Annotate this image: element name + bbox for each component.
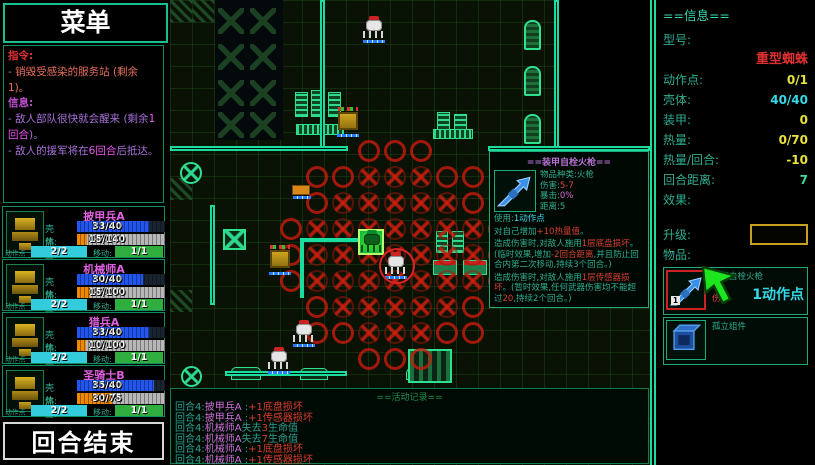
attack-range-cell[interactable] <box>410 322 432 344</box>
attack-range-cell[interactable] <box>306 270 328 292</box>
attack-range-cell[interactable] <box>410 348 432 370</box>
ap-move-row: 动作点2/2移动:1/1 <box>5 246 164 257</box>
game-screen: { "sidebar": { "menu_title": "菜单", "orde… <box>0 0 815 465</box>
attack-range-cell[interactable] <box>332 322 354 344</box>
log-entry: 回合4:机械师A :+1传感器损坏 <box>175 456 644 465</box>
weapon-tooltip: ==装甲自栓火枪== 物品种类:火枪伤害:5-7暴击:0%距离:5 使用:1动作… <box>489 151 649 308</box>
effects-label: 效果: <box>663 190 808 210</box>
item-name: 孤立组件 <box>712 320 746 332</box>
tank-object <box>524 114 541 144</box>
unit-card[interactable]: 圣骑士B壳体:35/40热量:30/75动作点2/2移动:1/1 <box>2 365 165 417</box>
left-sidebar: 菜单 指令: - 销毁受感染的服务站 (剩余1)。 信息: - 敌人部队很快就会… <box>0 0 170 465</box>
wall-segment <box>320 0 325 150</box>
wall-segment <box>554 0 559 148</box>
unit-card[interactable]: 披甲兵A壳体:33/40热量:15/140动作点2/2移动:1/1 <box>2 206 165 258</box>
ally-mech[interactable] <box>336 110 360 138</box>
model-label: 型号: <box>663 30 808 50</box>
upgrade-label: 升级: <box>663 225 691 245</box>
model-value: 重型蜘蛛 <box>663 50 808 70</box>
crate-object <box>223 229 246 250</box>
attack-range-cell[interactable] <box>384 218 406 240</box>
ap-move-row: 动作点2/2移动:1/1 <box>5 352 164 363</box>
item-count-badge: 1 <box>671 296 680 305</box>
fan-object <box>180 162 202 184</box>
attack-range-cell[interactable] <box>462 244 484 266</box>
attack-range-cell[interactable] <box>358 270 380 292</box>
enemy-spider[interactable] <box>267 347 291 375</box>
stat-row: 动作点:0/1 <box>663 70 808 90</box>
attack-range-cell[interactable] <box>358 296 380 318</box>
attack-range-cell[interactable] <box>410 192 432 214</box>
unit-card[interactable]: 猎兵A壳体:33/40热量:10/100动作点2/2移动:1/1 <box>2 312 165 364</box>
selected-unit-spider[interactable] <box>360 230 384 258</box>
tooltip-line: 对自己增加+10热量值。 <box>494 227 644 238</box>
bigx-object <box>250 8 276 34</box>
stat-row: 装甲:0 <box>663 110 808 130</box>
mission-info-list: - 敌人部队很快就会醒来 (剩余1回合)。- 敌人的援军将在6回合后抵达。 <box>8 112 159 159</box>
movement-path <box>300 238 304 298</box>
component-icon[interactable] <box>666 320 706 360</box>
ally-mech[interactable] <box>268 248 292 276</box>
info-panel: ==信息== 型号: 重型蜘蛛 动作点:0/1壳体:40/40装甲:0热量:0/… <box>656 0 815 465</box>
mission-panel: 指令: - 销毁受感染的服务站 (剩余1)。 信息: - 敌人部队很快就会醒来 … <box>3 45 164 203</box>
unit-stats: 动作点:0/1壳体:40/40装甲:0热量:0/70热量/回合:-10回合距离:… <box>663 70 808 190</box>
orders-label: 指令: <box>8 49 159 65</box>
battle-log-lines: 回合4:披甲兵A :+1底盘损坏回合4:披甲兵A :+1传感器损坏回合4:机械师… <box>175 403 644 465</box>
unit-roster: 披甲兵A壳体:33/40热量:15/140动作点2/2移动:1/1机械师A壳体:… <box>2 206 167 418</box>
tooltip-line: 造成伤害时,对敌人施用1层底盘损坏。(临时效果,增加-2回合距离,并且防止回合内… <box>494 239 644 271</box>
stat-row: 壳体:40/40 <box>663 90 808 110</box>
tank-object <box>524 20 541 50</box>
attack-range-cell[interactable] <box>436 270 458 292</box>
attack-range-cell[interactable] <box>358 192 380 214</box>
attack-range-cell[interactable] <box>384 296 406 318</box>
menu-button[interactable]: 菜单 <box>3 3 168 43</box>
wall-segment <box>170 146 348 151</box>
mission-info-line: - 敌人部队很快就会醒来 (剩余1回合)。 <box>8 112 159 144</box>
attack-range-cell[interactable] <box>384 322 406 344</box>
attack-range-cell[interactable] <box>410 166 432 188</box>
attack-range-cell[interactable] <box>384 192 406 214</box>
attack-range-cell[interactable] <box>358 322 380 344</box>
attack-range-cell[interactable] <box>462 218 484 240</box>
fog-of-war <box>558 0 650 148</box>
attack-range-cell[interactable] <box>436 322 458 344</box>
attack-range-cell[interactable] <box>358 140 380 162</box>
orders-list: - 销毁受感染的服务站 (剩余1)。 <box>8 65 159 97</box>
attack-range-cell[interactable] <box>280 218 302 240</box>
attack-range-cell[interactable] <box>332 270 354 292</box>
hatch-object <box>170 290 192 312</box>
unit-card[interactable]: 机械师A壳体:30/40热量:15/100动作点2/2移动:1/1 <box>2 259 165 311</box>
bigx-object <box>218 112 244 138</box>
tooltip-description: 使用:1动作点对自己增加+10热量值。造成伤害时,对敌人施用1层底盘损坏。(临时… <box>494 214 644 304</box>
log-entry: 回合4:披甲兵A :+1底盘损坏 <box>175 403 644 414</box>
attack-range-cell[interactable] <box>358 166 380 188</box>
movement-path <box>300 238 364 242</box>
cursor-icon <box>702 262 743 312</box>
bigx-object <box>218 80 244 106</box>
attack-range-cell[interactable] <box>436 166 458 188</box>
mission-info-label: 信息: <box>8 96 159 112</box>
rack-v-object <box>295 92 308 117</box>
tank-object <box>524 66 541 96</box>
ally-mini[interactable] <box>292 185 312 201</box>
attack-range-cell[interactable] <box>332 296 354 318</box>
tooltip-weapon-icon <box>494 170 536 212</box>
attack-range-cell[interactable] <box>436 192 458 214</box>
order-line: - 销毁受感染的服务站 (剩余1)。 <box>8 65 159 97</box>
bigx-object <box>218 44 244 70</box>
attack-range-cell[interactable] <box>384 348 406 370</box>
item-slot[interactable]: 孤立组件 <box>663 317 808 365</box>
upgrade-slot[interactable] <box>750 224 808 245</box>
stat-row: 回合距离:7 <box>663 170 808 190</box>
tooltip-line: 使用:1动作点 <box>494 214 644 225</box>
attack-range-cell[interactable] <box>436 296 458 318</box>
attack-range-cell[interactable] <box>410 296 432 318</box>
attack-range-cell[interactable] <box>332 244 354 266</box>
battle-log-panel: ==活动记录== 回合4:披甲兵A :+1底盘损坏回合4:披甲兵A :+1传感器… <box>170 388 649 464</box>
attack-range-cell[interactable] <box>436 218 458 240</box>
ap-move-row: 动作点2/2移动:1/1 <box>5 405 164 416</box>
attack-range-cell[interactable] <box>306 296 328 318</box>
rack-h-object <box>433 129 473 139</box>
stat-row: 热量/回合:-10 <box>663 150 808 170</box>
attack-range-cell[interactable] <box>332 166 354 188</box>
hatch-object <box>192 0 214 22</box>
attack-range-cell[interactable] <box>384 166 406 188</box>
attack-range-cell[interactable] <box>462 270 484 292</box>
attack-range-cell[interactable] <box>306 218 328 240</box>
fan-object <box>181 366 202 387</box>
attack-range-cell[interactable] <box>358 348 380 370</box>
enemy-spider-targeted[interactable] <box>384 252 408 280</box>
attack-range-cell[interactable] <box>436 244 458 266</box>
enemy-spider[interactable] <box>292 320 316 348</box>
attack-range-cell[interactable] <box>462 166 484 188</box>
hatch-object <box>170 0 192 22</box>
log-entry: 回合4:机械师A :+1底盘损坏 <box>175 445 644 456</box>
attack-range-cell[interactable] <box>384 140 406 162</box>
end-turn-button[interactable]: 回合结束 <box>3 422 164 460</box>
bigx-object <box>250 112 276 138</box>
bigx-object <box>250 44 276 70</box>
info-panel-title: ==信息== <box>663 5 808 24</box>
bigx-object <box>250 80 276 106</box>
attack-range-cell[interactable] <box>306 244 328 266</box>
enemy-spider[interactable] <box>362 16 386 44</box>
attack-range-cell[interactable] <box>332 218 354 240</box>
wall-segment <box>210 205 215 305</box>
attack-range-cell[interactable] <box>462 322 484 344</box>
stat-row: 热量:0/70 <box>663 130 808 150</box>
tooltip-line: 造成伤害时,对敌人施用1层传感器损坏。(暂时效果,任何武器伤害均不能超过20,持… <box>494 273 644 305</box>
attack-range-cell[interactable] <box>410 218 432 240</box>
log-entry: 回合4:机械师A失去3生命值 <box>175 424 644 435</box>
bigx-object <box>218 8 244 34</box>
ap-move-row: 动作点2/2移动:1/1 <box>5 299 164 310</box>
attack-range-cell[interactable] <box>332 192 354 214</box>
tooltip-title: ==装甲自栓火枪== <box>494 155 644 168</box>
rifle-icon[interactable]: 1 <box>666 270 706 310</box>
attack-range-cell[interactable] <box>462 192 484 214</box>
attack-range-cell[interactable] <box>462 296 484 318</box>
item-cost: 1动作点 <box>752 284 804 304</box>
mission-info-line: - 敌人的援军将在6回合后抵达。 <box>8 144 159 160</box>
attack-range-cell[interactable] <box>410 140 432 162</box>
